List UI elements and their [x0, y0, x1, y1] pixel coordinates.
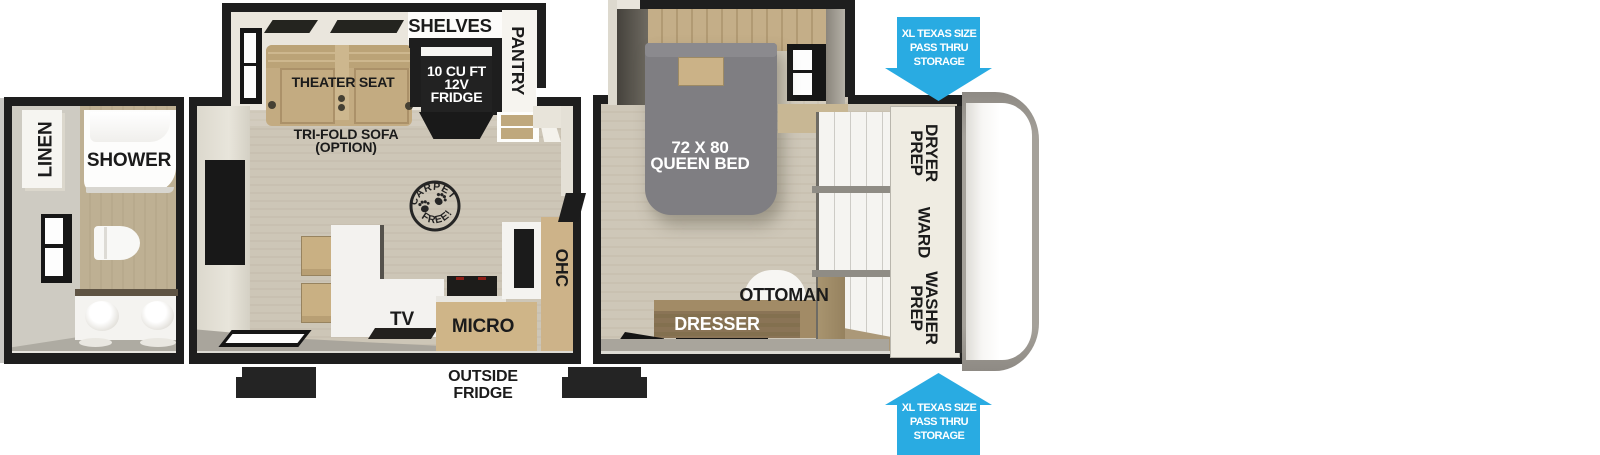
svg-text:CARPET: CARPET: [408, 181, 459, 207]
